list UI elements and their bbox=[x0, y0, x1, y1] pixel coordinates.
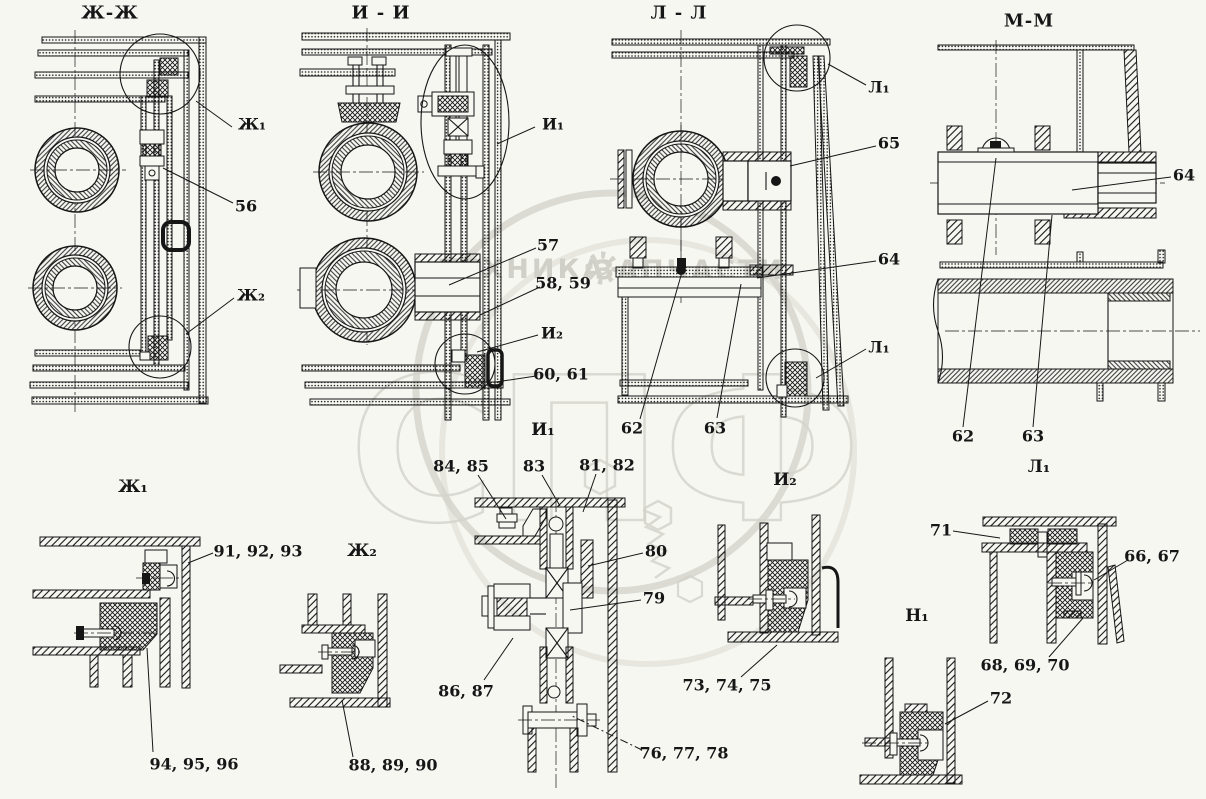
detail-view-zh1 bbox=[33, 537, 213, 752]
section-view-zh-zh bbox=[28, 30, 234, 415]
upper-joint-assembly bbox=[418, 48, 484, 178]
line-art-canvas: СПФ ТЕХНИКА ЗАПЧАСТИ bbox=[0, 0, 1206, 799]
trunnion-block bbox=[415, 254, 480, 320]
shaft-end-65 bbox=[723, 152, 791, 210]
section-view-m-m bbox=[930, 40, 1200, 427]
technical-drawing-page: СПФ ТЕХНИКА ЗАПЧАСТИ bbox=[0, 0, 1206, 799]
detail-view-l1 bbox=[953, 517, 1128, 657]
hanger-bracket bbox=[338, 57, 400, 122]
pipe-assembly bbox=[934, 250, 1201, 401]
detail-view-n1 bbox=[860, 658, 988, 784]
detail-view-zh2 bbox=[280, 594, 390, 757]
bearing-ring bbox=[313, 123, 424, 221]
bearing-ring bbox=[30, 128, 126, 212]
bearing-ring bbox=[28, 246, 122, 330]
